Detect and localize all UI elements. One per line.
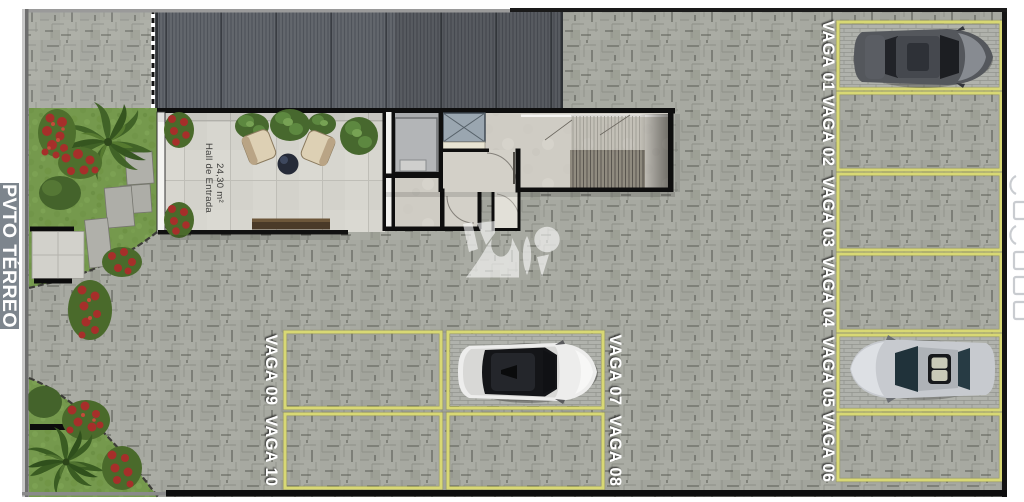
svg-text:VAGA 08: VAGA 08: [606, 416, 624, 487]
svg-text:Hall de Entrada: Hall de Entrada: [203, 143, 214, 213]
svg-text:VAGA 03: VAGA 03: [819, 177, 837, 248]
svg-text:PVTO TÉRREO: PVTO TÉRREO: [0, 184, 21, 328]
svg-text:VAGA 09: VAGA 09: [262, 335, 280, 406]
svg-text:VAGA 02: VAGA 02: [819, 96, 837, 167]
svg-text:VAGA 05: VAGA 05: [819, 337, 837, 408]
svg-text:VAGA 10: VAGA 10: [262, 416, 280, 487]
svg-text:VAGA 06: VAGA 06: [819, 412, 837, 483]
svg-text:VAGA 04: VAGA 04: [819, 257, 837, 328]
svg-text:24,30 m²: 24,30 m²: [214, 163, 225, 203]
svg-text:VAGA 07: VAGA 07: [606, 335, 624, 406]
svg-text:VAGA 01: VAGA 01: [819, 21, 837, 92]
